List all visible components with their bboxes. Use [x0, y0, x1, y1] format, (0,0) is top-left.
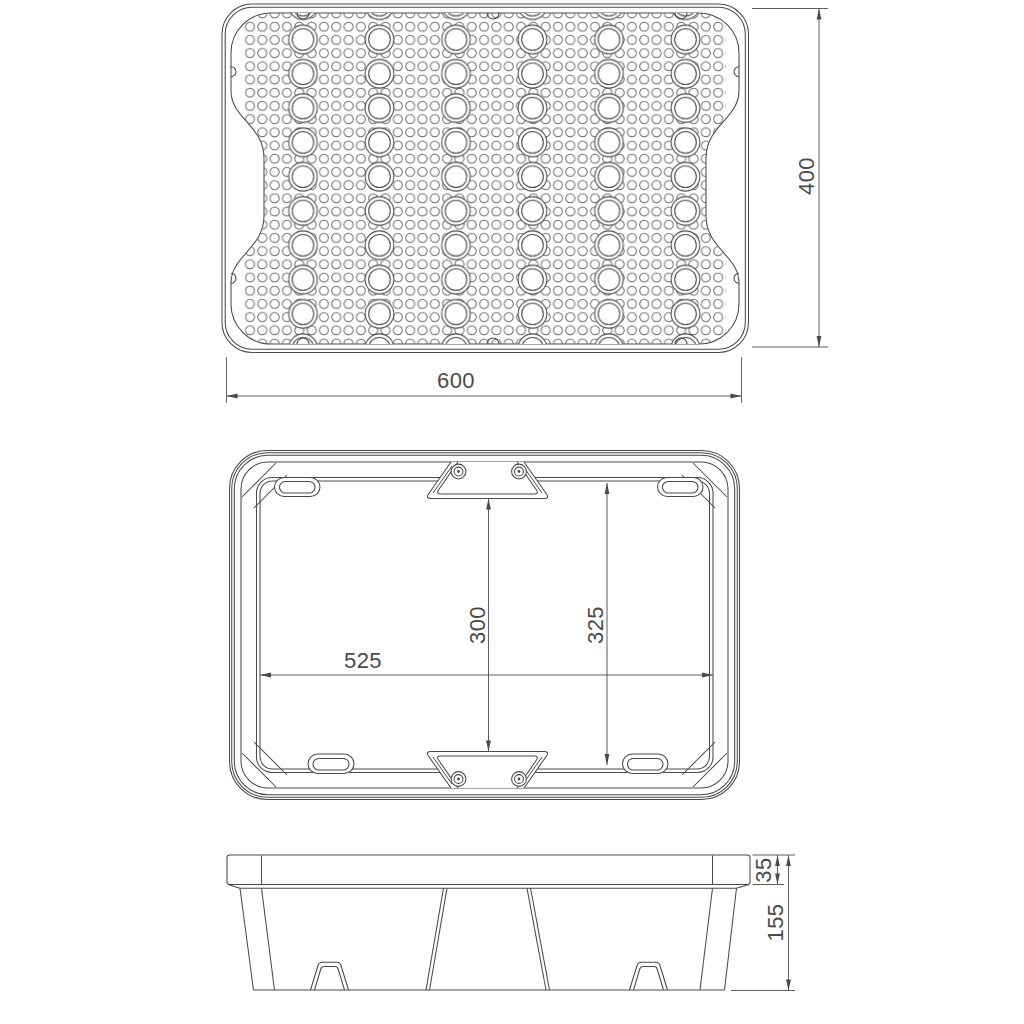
top-view-perforation-pattern [245, 13, 726, 344]
side-view-dimensions: 35 155 [731, 855, 795, 991]
handle-pocket-top [427, 462, 547, 499]
side-view-rim [227, 855, 750, 885]
foot-pad-top-left [275, 478, 321, 497]
side-view-ribs [426, 888, 550, 990]
underside-dimensions: 525 300 325 [260, 483, 713, 765]
screw-boss [451, 772, 466, 787]
dim-400-label: 400 [794, 157, 819, 195]
foot-pad-bottom-left [308, 754, 354, 774]
screw-boss [512, 772, 527, 787]
foot-pad-top-right [658, 478, 704, 497]
screw-boss [451, 464, 466, 479]
foot-pad-bottom-right [623, 754, 669, 774]
technical-drawing: 600 400 [0, 0, 1024, 1024]
dim-525-label: 525 [344, 648, 382, 673]
dim-300-label: 300 [465, 606, 490, 644]
top-view [222, 4, 749, 353]
dim-600-label: 600 [437, 368, 475, 393]
drawing-page: 600 400 [0, 0, 1024, 1024]
side-view-foot-notches [311, 962, 668, 990]
dim-35-label: 35 [751, 857, 776, 882]
screw-boss [512, 464, 527, 479]
dim-325-label: 325 [583, 606, 608, 644]
side-view [227, 855, 750, 990]
side-view-body [228, 856, 749, 991]
handle-pocket-bottom [427, 752, 547, 789]
dim-155-label: 155 [763, 903, 788, 941]
dim-600 [227, 357, 742, 403]
